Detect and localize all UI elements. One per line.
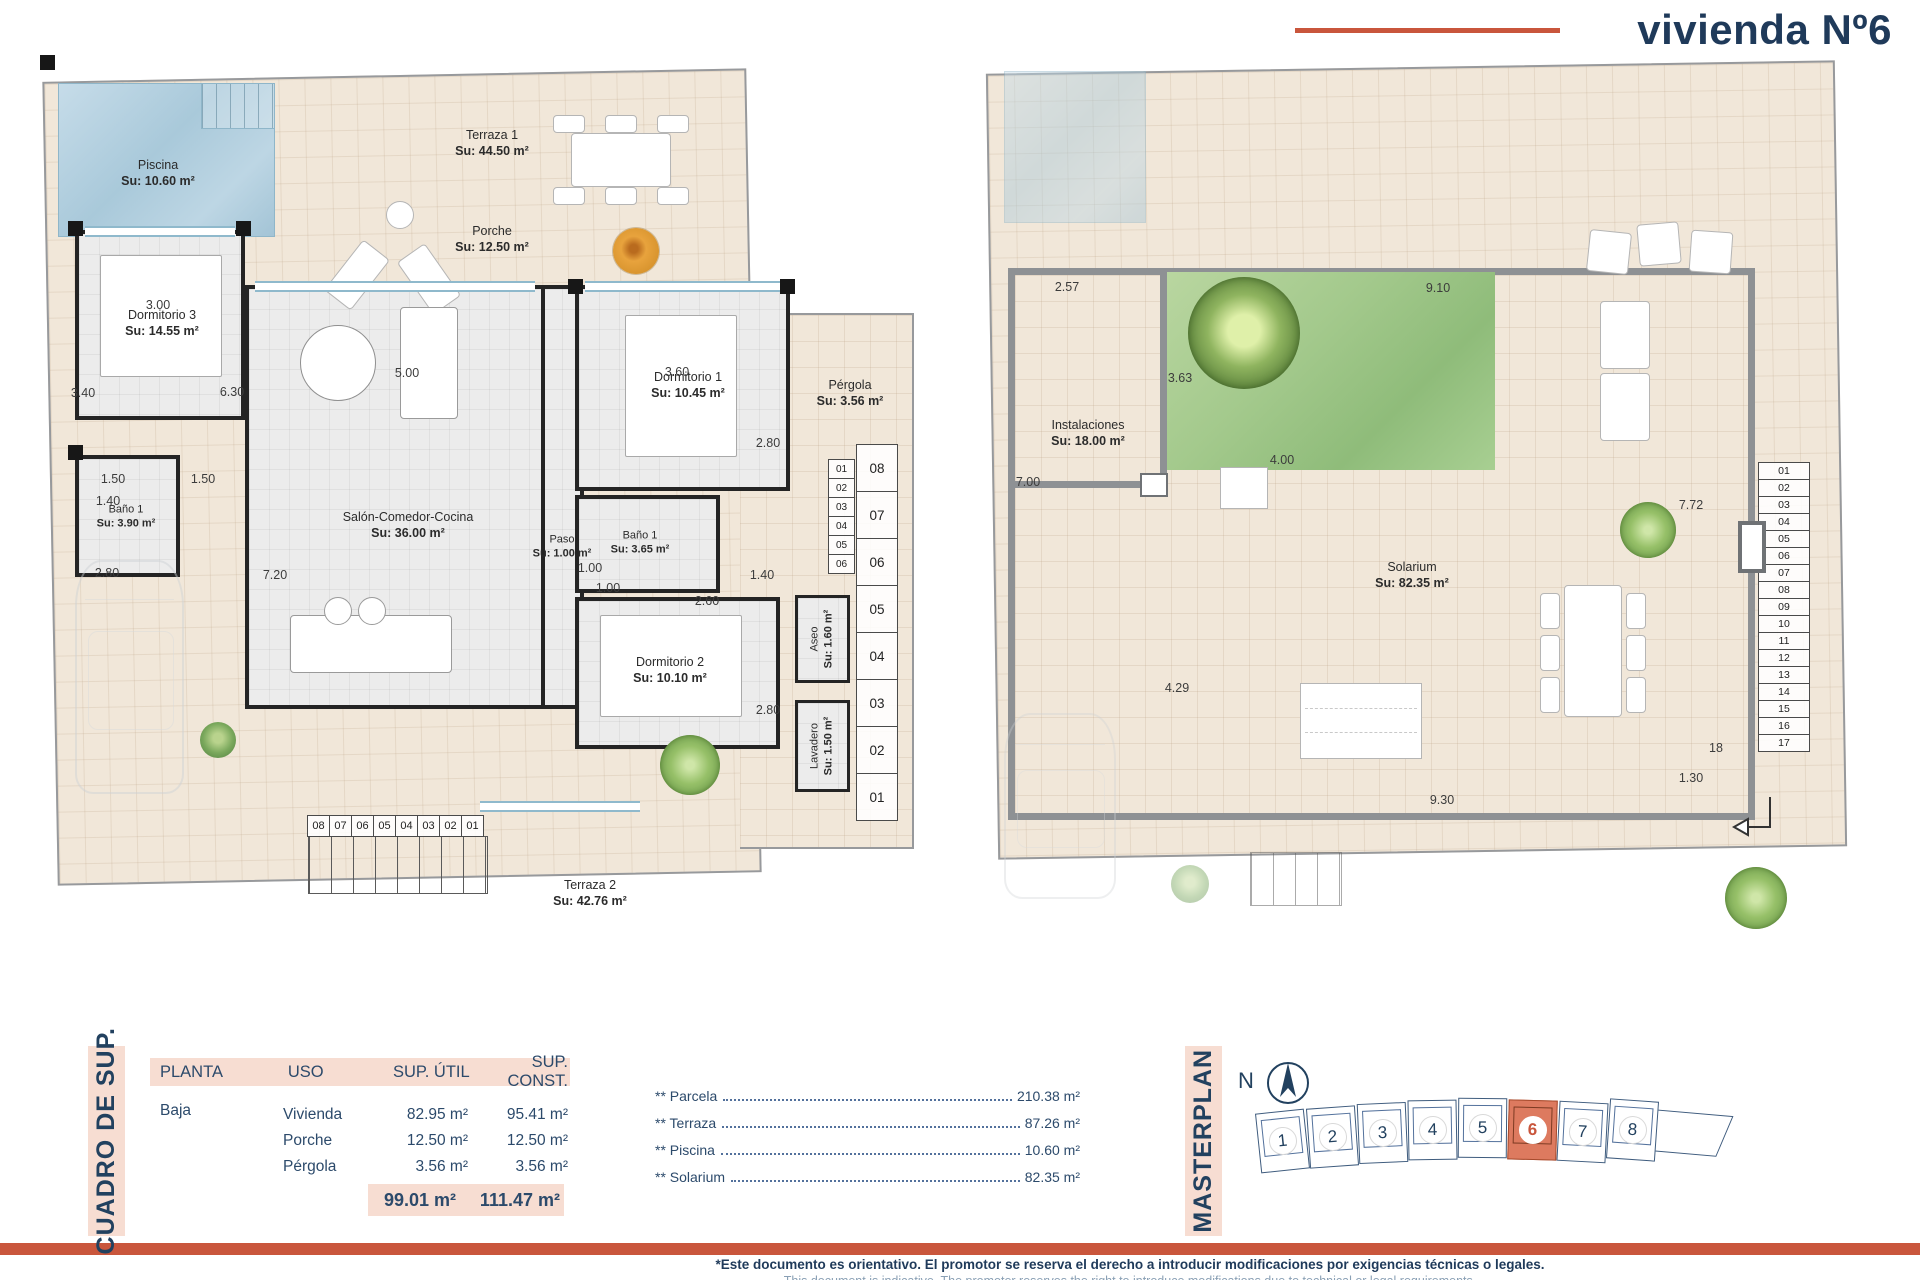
stair-step: 05 — [373, 815, 396, 837]
tree-icon — [1188, 277, 1300, 389]
dimension-label: 4.00 — [1270, 453, 1294, 467]
surface-rows: Vivienda 82.95 m² 95.41 m² Porche 12.50 … — [283, 1102, 570, 1180]
dimension-label: 3.00 — [146, 298, 170, 312]
room-label-paso: PasoSu: 1.00 m² — [533, 533, 592, 562]
extra-label: ** Piscina — [655, 1142, 715, 1158]
stair-step: 11 — [1758, 632, 1810, 650]
plot-number: 5 — [1468, 1114, 1496, 1142]
door-icon — [1738, 521, 1766, 573]
plot-number: 6 — [1518, 1116, 1547, 1145]
stair-step: 05 — [828, 535, 855, 555]
table-row: Porche 12.50 m² 12.50 m² — [283, 1128, 570, 1154]
sun-chair-icon — [1636, 221, 1682, 267]
list-item: ** Piscina 10.60 m² — [655, 1142, 1080, 1169]
extra-value: 10.60 m² — [1025, 1142, 1080, 1158]
stair-step: 04 — [828, 516, 855, 536]
door-icon — [1140, 473, 1168, 497]
ground-floor-plan: PiscinaSu: 10.60 m² Terraza 1Su: 44.50 m… — [40, 55, 940, 925]
pillar — [40, 55, 55, 70]
plot-number: 4 — [1418, 1116, 1446, 1144]
room-label-terraza1: Terraza 1Su: 44.50 m² — [455, 127, 529, 160]
window-icon — [480, 801, 640, 812]
dimension-label: 3.60 — [665, 365, 689, 379]
sofa-icon — [400, 307, 458, 419]
stair-step: 03 — [828, 497, 855, 517]
dimension-label: 2.80 — [756, 436, 780, 450]
dimension-label: 1.50 — [191, 472, 215, 486]
door-icon — [1220, 467, 1268, 509]
footer-accent-bar — [0, 1243, 1920, 1255]
dimension-label: 7.00 — [1016, 475, 1040, 489]
total-useful: 99.01 m² — [368, 1190, 456, 1211]
use-name: Porche — [283, 1132, 373, 1150]
sink-icon — [358, 597, 386, 625]
dimension-label: 9.30 — [1430, 793, 1454, 807]
built-surface: 3.56 m² — [468, 1158, 570, 1176]
col-header-sup-util: SUP. ÚTIL — [376, 1063, 469, 1082]
masterplan-plot: 6 — [1507, 1099, 1558, 1160]
stair-step: 14 — [1758, 683, 1810, 701]
stair-step: 06 — [828, 554, 855, 574]
extra-surfaces-list: ** Parcela 210.38 m² ** Terraza 87.26 m²… — [655, 1088, 1080, 1196]
masterplan-plot: 4 — [1407, 1100, 1457, 1161]
stair-direction-arrow-icon — [1730, 795, 1778, 841]
window-icon — [85, 226, 235, 237]
room-label-bano-1-right: Baño 1Su: 3.65 m² — [611, 529, 670, 558]
stair-step: 03 — [417, 815, 440, 837]
pool-ghost — [1004, 71, 1146, 223]
dimension-label: 18 — [1709, 741, 1723, 755]
stair-step: 12 — [1758, 649, 1810, 667]
stair-step: 02 — [439, 815, 462, 837]
stair-step: 01 — [461, 815, 484, 837]
stair-step: 17 — [1758, 734, 1810, 752]
surface-totals: 99.01 m² 111.47 m² — [368, 1184, 564, 1216]
dimension-label: 4.29 — [1165, 681, 1189, 695]
dotted-leader — [722, 1126, 1020, 1128]
surface-table: PLANTA USO SUP. ÚTIL SUP. CONST. Baja Vi… — [150, 1058, 570, 1180]
extra-label: ** Terraza — [655, 1115, 716, 1131]
masterplan-plot: 5 — [1458, 1098, 1508, 1158]
useful-surface: 82.95 m² — [373, 1106, 468, 1124]
use-name: Vivienda — [283, 1106, 373, 1124]
stair-step: 07 — [856, 491, 898, 539]
stair-step: 04 — [856, 632, 898, 680]
floor-name: Baja — [150, 1102, 283, 1180]
room-label-terraza2: Terraza 2Su: 42.76 m² — [553, 877, 627, 910]
pillar — [68, 221, 83, 236]
tree-icon — [200, 722, 236, 758]
dimension-label: 2.60 — [695, 594, 719, 608]
masterplan-plot: 3 — [1357, 1102, 1409, 1164]
extra-label: ** Parcela — [655, 1088, 717, 1104]
room-label-pergola: PérgolaSu: 3.56 m² — [817, 377, 884, 410]
room-label-lavadero: LavaderoSu: 1.50 m² — [808, 717, 837, 776]
stair-step: 16 — [1758, 717, 1810, 735]
total-built: 111.47 m² — [456, 1190, 562, 1211]
stair-step: 06 — [351, 815, 374, 837]
useful-surface: 3.56 m² — [373, 1158, 468, 1176]
sofa-icon — [1600, 373, 1650, 441]
stair-treads — [308, 836, 488, 894]
dimension-label: 7.72 — [1679, 498, 1703, 512]
stair-step: 02 — [1758, 479, 1810, 497]
dimension-label: 2.80 — [95, 566, 119, 580]
masterplan-plot: 2 — [1306, 1105, 1359, 1168]
stair-step: 03 — [1758, 496, 1810, 514]
list-item: ** Terraza 87.26 m² — [655, 1115, 1080, 1142]
dimension-label: 1.50 — [101, 472, 125, 486]
stair-step: 08 — [1758, 581, 1810, 599]
dimension-label: 1.30 — [1679, 771, 1703, 785]
room-label-piscina: PiscinaSu: 10.60 m² — [121, 157, 195, 190]
masterplan-plot: 8 — [1606, 1098, 1659, 1161]
extra-label: ** Solarium — [655, 1169, 725, 1185]
window-icon — [255, 281, 535, 292]
extra-value: 87.26 m² — [1025, 1115, 1080, 1131]
wall — [1160, 275, 1167, 487]
dimension-label: 1.00 — [596, 581, 620, 595]
list-item: ** Parcela 210.38 m² — [655, 1088, 1080, 1115]
sofa-icon — [1600, 301, 1650, 369]
dimension-label: 1.40 — [750, 568, 774, 582]
stair-step: 15 — [1758, 700, 1810, 718]
pillar — [68, 445, 83, 460]
room-label-dormitorio-2: Dormitorio 2Su: 10.10 m² — [627, 652, 713, 689]
masterplan-plot: 1 — [1255, 1109, 1310, 1174]
room-label-salon: Salón-Comedor-CocinaSu: 36.00 m² — [343, 509, 474, 542]
tree-icon — [1620, 502, 1676, 558]
dimension-label: 1.40 — [96, 494, 120, 508]
disclaimer-en: This document is indicative. The promote… — [690, 1274, 1570, 1280]
stair-step: 05 — [856, 585, 898, 633]
dotted-leader — [731, 1180, 1020, 1182]
disclaimer: *Este documento es orientativo. El promo… — [690, 1257, 1570, 1280]
dotted-leader — [723, 1099, 1012, 1101]
stair-step: 07 — [329, 815, 352, 837]
sun-chair-icon — [1689, 230, 1734, 275]
list-item: ** Solarium 82.35 m² — [655, 1169, 1080, 1196]
window-icon — [585, 281, 780, 292]
round-table-icon — [300, 325, 376, 401]
brochure-page: vivienda Nº6 PiscinaSu: 10.60 m² Terraza… — [0, 0, 1920, 1280]
stair-step: 10 — [1758, 615, 1810, 633]
stair-exterior: 0102030405060708091011121314151617 — [1758, 463, 1810, 752]
dimension-label: 9.10 — [1426, 281, 1450, 295]
stair-step: 09 — [1758, 598, 1810, 616]
masterplan-plot: 7 — [1556, 1101, 1608, 1163]
stair-step: 01 — [1758, 462, 1810, 480]
north-label: N — [1238, 1068, 1254, 1094]
room-label-aseo: AseoSu: 1.60 m² — [808, 610, 837, 669]
stair-step: 02 — [828, 478, 855, 498]
useful-surface: 12.50 m² — [373, 1132, 468, 1150]
table-row: Vivienda 82.95 m² 95.41 m² — [283, 1102, 570, 1128]
dimension-label: 1.00 — [578, 561, 602, 575]
orange-tree-icon — [613, 228, 659, 274]
stair-step: 02 — [856, 726, 898, 774]
stair-exterior: 0807060504030201 — [856, 445, 898, 821]
room-label-solarium: SolariumSu: 82.35 m² — [1375, 559, 1449, 592]
stair-step: 08 — [307, 815, 330, 837]
built-surface: 12.50 m² — [468, 1132, 570, 1150]
car-icon — [1004, 713, 1116, 899]
stair-step: 08 — [856, 444, 898, 492]
pillar — [568, 279, 583, 294]
dimension-label: 6.30 — [220, 385, 244, 399]
dimension-label: 3.63 — [1168, 371, 1192, 385]
tree-icon — [1171, 865, 1209, 903]
pillar — [780, 279, 795, 294]
dimension-label: 2.80 — [756, 703, 780, 717]
col-header-planta: PLANTA — [150, 1063, 288, 1082]
masterplan-side-label: MASTERPLAN — [1185, 1046, 1222, 1236]
built-surface: 95.41 m² — [468, 1106, 570, 1124]
stair-step: 03 — [856, 679, 898, 727]
stair-step: 01 — [828, 459, 855, 479]
use-name: Pérgola — [283, 1158, 373, 1176]
table-row: Pérgola 3.56 m² 3.56 m² — [283, 1154, 570, 1180]
accent-line — [1295, 28, 1560, 33]
dimension-label: 7.20 — [263, 568, 287, 582]
stair-step: 04 — [395, 815, 418, 837]
disclaimer-es: *Este documento es orientativo. El promo… — [690, 1257, 1570, 1272]
stair-step: 06 — [856, 538, 898, 586]
stair-interior: 010203040506 — [828, 460, 855, 574]
room-label-porche: PorcheSu: 12.50 m² — [455, 223, 529, 256]
pergola-slats-icon — [1300, 683, 1422, 759]
sun-chair-icon — [1586, 229, 1632, 275]
solarium-plan: InstalacionesSu: 18.00 m² SolariumSu: 82… — [988, 55, 1888, 925]
page-title: vivienda Nº6 — [1637, 6, 1892, 54]
dimension-label: 2.57 — [1055, 280, 1079, 294]
pool-steps-icon — [201, 83, 275, 129]
extra-value: 210.38 m² — [1017, 1088, 1080, 1104]
stair-salon: 0807060504030201 — [308, 815, 484, 837]
masterplan-plots: 1 2 3 4 5 6 7 8 — [1258, 1098, 1657, 1158]
stair-step: 01 — [856, 773, 898, 821]
dimension-label: 5.00 — [395, 366, 419, 380]
cuadro-side-label: CUADRO DE SUP. — [88, 1046, 125, 1236]
sink-icon — [324, 597, 352, 625]
dimension-label: 3.40 — [71, 386, 95, 400]
side-table-icon — [386, 201, 414, 229]
col-header-uso: USO — [288, 1063, 376, 1082]
room-label-instalaciones: InstalacionesSu: 18.00 m² — [1051, 417, 1125, 450]
pillar — [236, 221, 251, 236]
stair-step: 13 — [1758, 666, 1810, 684]
dotted-leader — [721, 1153, 1020, 1155]
stair-treads — [1250, 852, 1342, 906]
dining-table-icon — [1536, 583, 1648, 719]
dining-table-icon — [545, 115, 695, 203]
tree-icon — [660, 735, 720, 795]
extra-value: 82.35 m² — [1025, 1169, 1080, 1185]
tree-icon — [1725, 867, 1787, 929]
surface-table-header: PLANTA USO SUP. ÚTIL SUP. CONST. — [150, 1058, 570, 1086]
col-header-sup-const: SUP. CONST. — [470, 1053, 570, 1091]
car-icon — [75, 560, 184, 794]
